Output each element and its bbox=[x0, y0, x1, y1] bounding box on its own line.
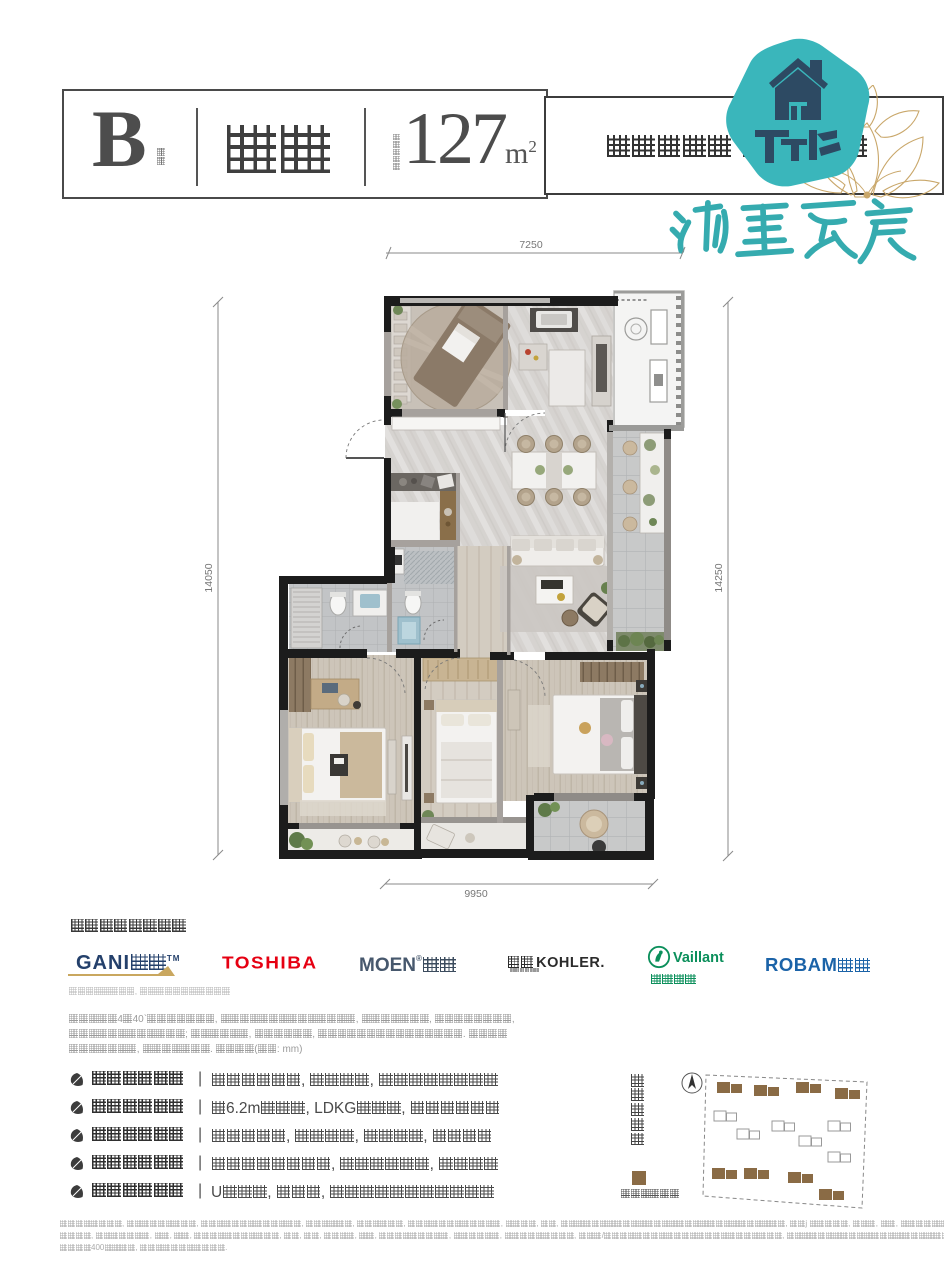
svg-text:14050: 14050 bbox=[203, 563, 215, 592]
svg-text:7250: 7250 bbox=[519, 239, 543, 251]
svg-text:9950: 9950 bbox=[464, 888, 488, 900]
svg-text:14250: 14250 bbox=[713, 563, 725, 592]
